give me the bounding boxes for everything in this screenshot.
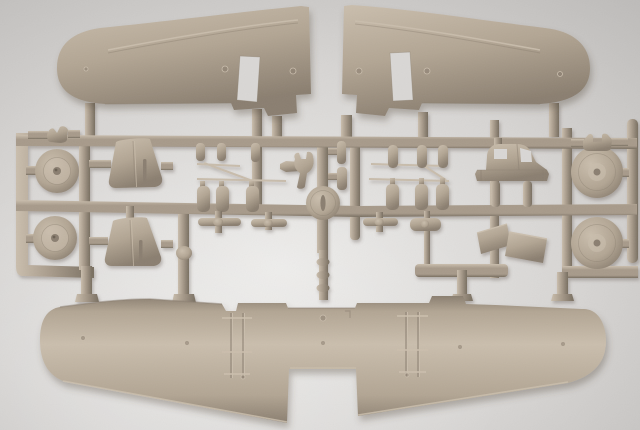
photo-grain bbox=[0, 0, 640, 430]
sprue-photo: Injection-molded plastic model aircraft … bbox=[0, 0, 640, 430]
